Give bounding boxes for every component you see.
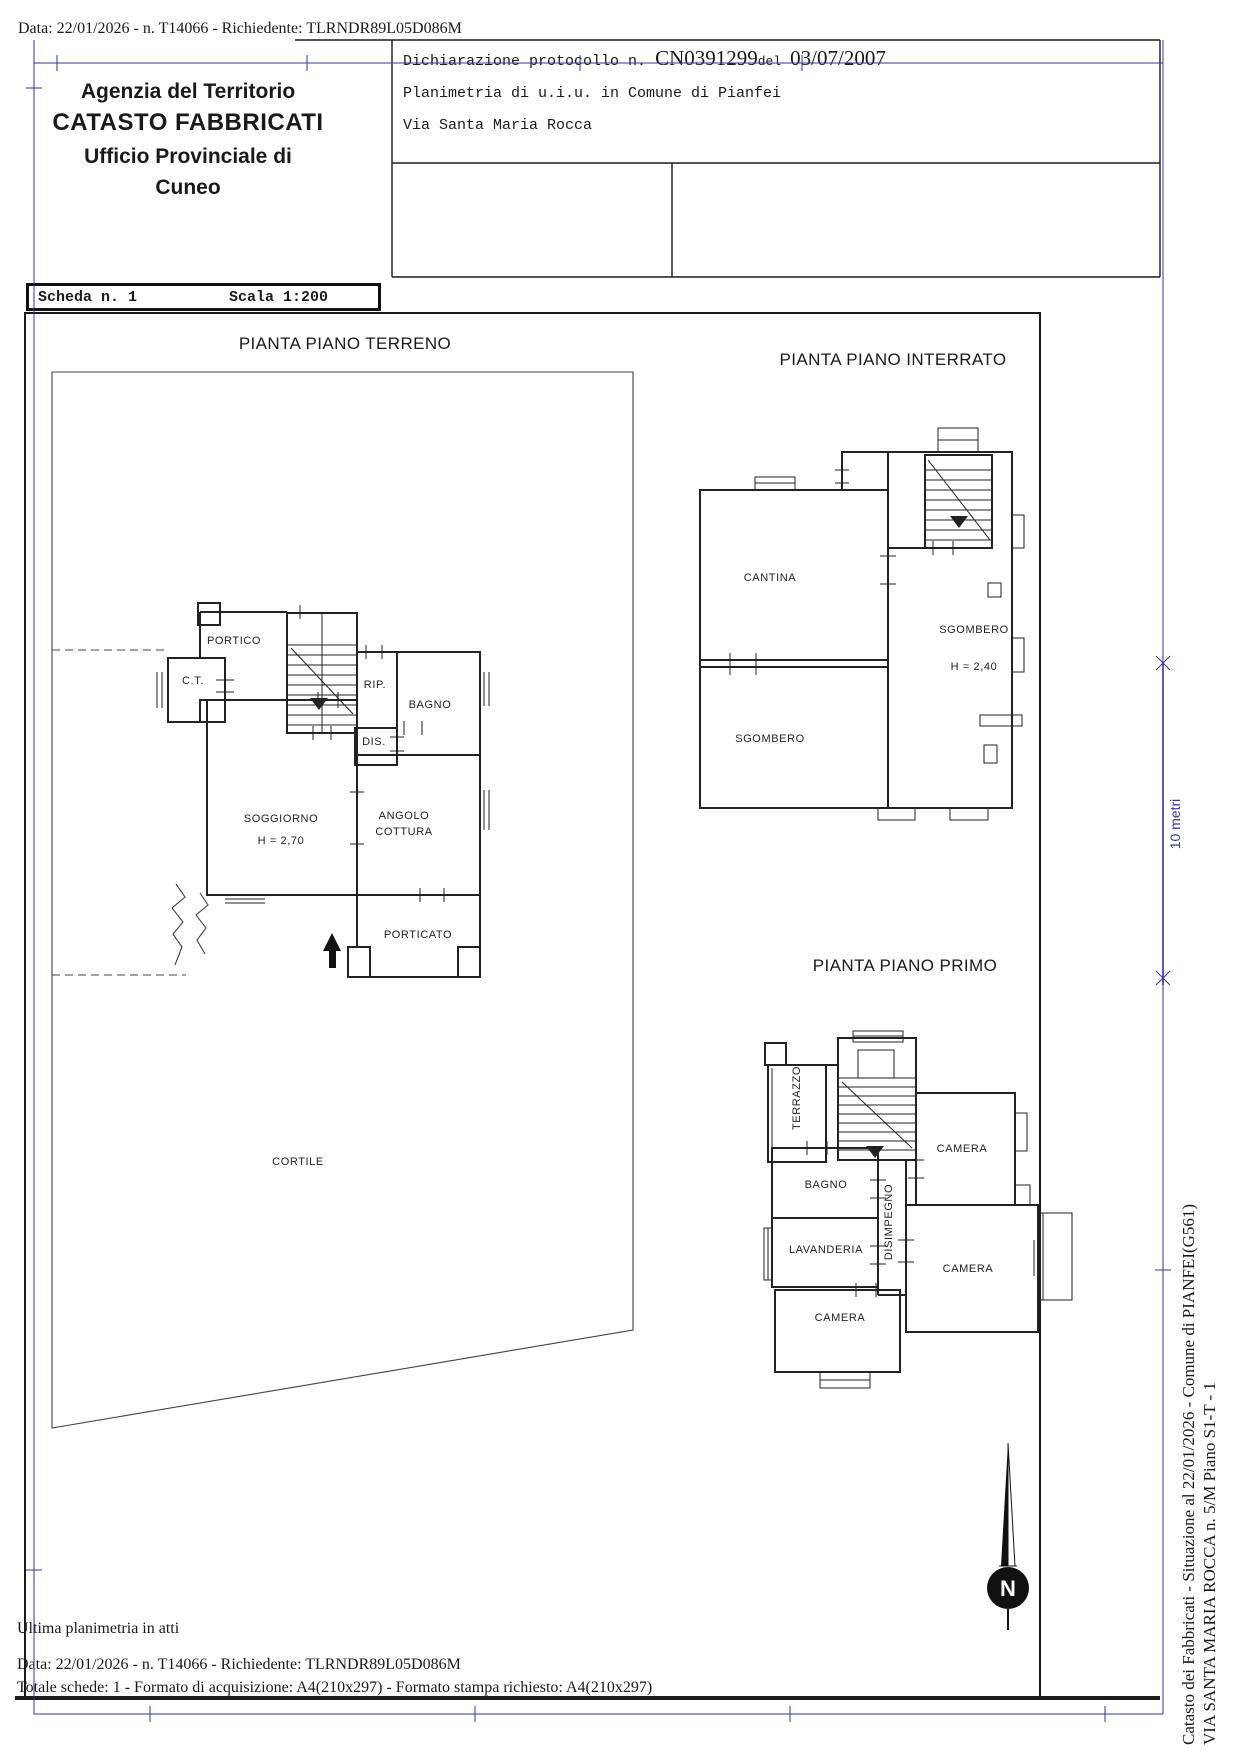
agency-header: Agenzia del Territorio CATASTO FABBRICAT… <box>48 80 328 199</box>
header-request-line: Data: 22/01/2026 - n. T14066 - Richieden… <box>18 20 462 38</box>
declaration-del: del <box>758 54 781 69</box>
agency-line4: Cuneo <box>48 176 328 199</box>
footer-last-plan-note: Ultima planimetria in atti <box>17 1620 179 1638</box>
margin-situation-line: Catasto dei Fabbricati - Situazione al 2… <box>1178 1045 1199 1745</box>
title-piano-terreno: PIANTA PIANO TERRENO <box>239 334 451 354</box>
scale-bar-label: 10 metri <box>1167 799 1183 850</box>
sheet-scale-box: Scheda n. 1 Scala 1:200 <box>26 283 381 311</box>
agency-line3: Ufficio Provinciale di <box>48 145 328 168</box>
protocol-number: CN0391299 <box>655 46 758 70</box>
sheet-number: Scheda n. 1 <box>38 289 137 306</box>
agency-line2: CATASTO FABBRICATI <box>48 110 328 136</box>
declaration-object: Planimetria di u.i.u. in Comune di Pianf… <box>403 85 781 102</box>
footer-format-line: Totale schede: 1 - Formato di acquisizio… <box>17 1679 652 1697</box>
declaration-label: Dichiarazione protocollo n. <box>403 53 646 70</box>
drawing-frame <box>24 312 1041 1699</box>
cadastral-sheet: Data: 22/01/2026 - n. T14066 - Richieden… <box>0 0 1242 1756</box>
footer-request-line: Data: 22/01/2026 - n. T14066 - Richieden… <box>17 1656 461 1674</box>
declaration-line1: Dichiarazione protocollo n. CN0391299del… <box>403 46 886 71</box>
agency-line1: Agenzia del Territorio <box>48 80 328 103</box>
declaration-address: Via Santa Maria Rocca <box>403 117 592 134</box>
title-piano-primo: PIANTA PIANO PRIMO <box>813 956 997 976</box>
protocol-date: 03/07/2007 <box>790 46 886 70</box>
margin-rotated-text: Catasto dei Fabbricati - Situazione al 2… <box>1178 1045 1220 1745</box>
scale-value: Scala 1:200 <box>229 289 328 306</box>
title-piano-interrato: PIANTA PIANO INTERRATO <box>779 350 1006 370</box>
margin-address-line: VIA SANTA MARIA ROCCA n. 5/M Piano S1-T … <box>1199 1045 1220 1745</box>
